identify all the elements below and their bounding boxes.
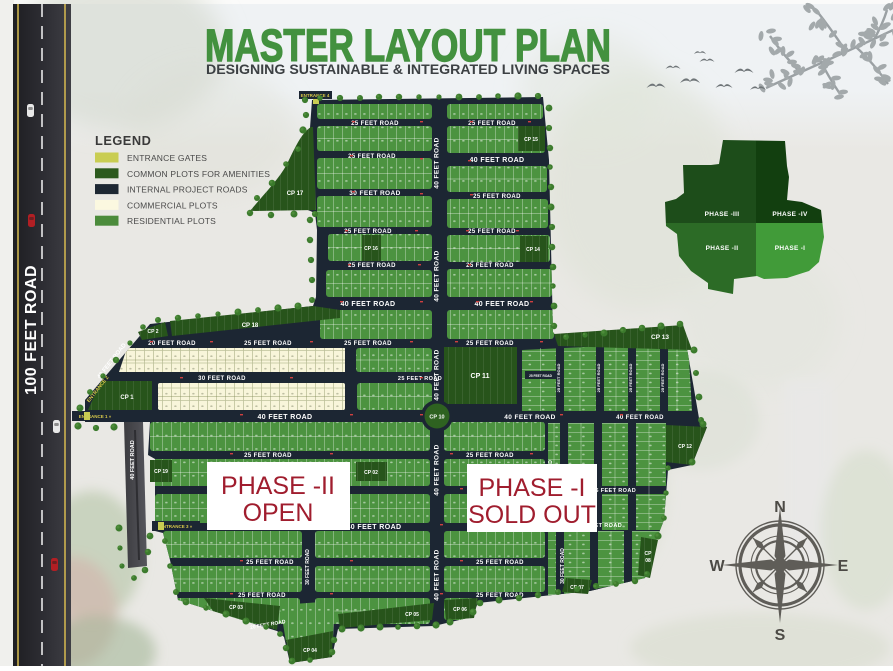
svg-text:CP 05: CP 05 xyxy=(405,612,419,618)
svg-text:40 FEET ROAD: 40 FEET ROAD xyxy=(434,549,441,600)
svg-text:40 FEET ROAD: 40 FEET ROAD xyxy=(434,250,441,301)
svg-text:25 FEET ROAD: 25 FEET ROAD xyxy=(344,341,392,347)
svg-text:08: 08 xyxy=(645,558,651,564)
svg-text:25 FEET ROAD: 25 FEET ROAD xyxy=(468,229,516,235)
svg-text:25 FEET ROAD: 25 FEET ROAD xyxy=(466,263,514,269)
svg-text:40 FEET ROAD: 40 FEET ROAD xyxy=(434,444,441,495)
svg-text:S: S xyxy=(775,627,786,644)
svg-text:40 FEET ROAD: 40 FEET ROAD xyxy=(504,414,555,421)
svg-text:25 FEET ROAD: 25 FEET ROAD xyxy=(476,560,524,566)
svg-text:25 FEET ROAD: 25 FEET ROAD xyxy=(348,263,396,269)
svg-text:25 FEET ROAD: 25 FEET ROAD xyxy=(628,364,633,393)
svg-text:ENTRANCE 3 »: ENTRANCE 3 » xyxy=(160,524,193,529)
svg-text:30 FEET ROAD: 30 FEET ROAD xyxy=(349,190,400,197)
svg-text:CP 02: CP 02 xyxy=(364,470,378,476)
svg-text:25 FEET ROAD: 25 FEET ROAD xyxy=(244,341,292,347)
svg-text:30 FEET ROAD: 30 FEET ROAD xyxy=(305,549,311,585)
svg-text:N: N xyxy=(774,499,786,516)
svg-text:25 FEET ROAD: 25 FEET ROAD xyxy=(238,593,286,599)
svg-text:CP 13: CP 13 xyxy=(651,334,669,341)
svg-text:40 FEET ROAD: 40 FEET ROAD xyxy=(347,524,402,531)
svg-text:40 FEET ROAD: 40 FEET ROAD xyxy=(475,301,530,308)
svg-text:CP 2: CP 2 xyxy=(147,329,158,335)
svg-text:DESIGNING SUSTAINABLE & INTEGR: DESIGNING SUSTAINABLE & INTEGRATED LIVIN… xyxy=(206,62,610,77)
svg-text:25 FEET ROAD: 25 FEET ROAD xyxy=(246,560,294,566)
svg-text:RESIDENTIAL PLOTS: RESIDENTIAL PLOTS xyxy=(127,216,216,226)
svg-text:LEGEND: LEGEND xyxy=(95,133,151,148)
svg-text:CP 15: CP 15 xyxy=(524,137,538,143)
svg-text:CP 16: CP 16 xyxy=(364,246,378,252)
svg-text:CP 1: CP 1 xyxy=(120,395,134,401)
svg-text:25 FEET ROAD: 25 FEET ROAD xyxy=(351,121,399,127)
svg-text:W: W xyxy=(709,558,725,575)
svg-text:CP 19: CP 19 xyxy=(154,469,168,475)
svg-text:25 FEET ROAD: 25 FEET ROAD xyxy=(592,488,636,494)
svg-text:ENTRANCE GATES: ENTRANCE GATES xyxy=(127,153,207,163)
svg-text:SOLD OUT: SOLD OUT xyxy=(468,501,596,529)
svg-text:40 FEET ROAD: 40 FEET ROAD xyxy=(616,415,664,421)
svg-text:PHASE -II: PHASE -II xyxy=(706,245,739,252)
svg-text:25 FEET ROAD: 25 FEET ROAD xyxy=(596,364,601,393)
svg-text:CP 10: CP 10 xyxy=(429,415,444,421)
svg-text:25 FEET ROAD: 25 FEET ROAD xyxy=(466,341,514,347)
svg-text:40 FEET ROAD: 40 FEET ROAD xyxy=(341,301,396,308)
svg-text:CP 06: CP 06 xyxy=(453,607,467,613)
svg-text:E: E xyxy=(838,558,849,575)
svg-text:CP: CP xyxy=(645,551,653,557)
svg-text:PHASE -IV: PHASE -IV xyxy=(772,211,808,218)
svg-text:40 FEET ROAD: 40 FEET ROAD xyxy=(470,157,525,164)
svg-text:100 FEET ROAD: 100 FEET ROAD xyxy=(23,265,40,395)
svg-text:PHASE -III: PHASE -III xyxy=(705,211,740,218)
svg-text:COMMERCIAL PLOTS: COMMERCIAL PLOTS xyxy=(127,200,218,210)
svg-text:PHASE -II: PHASE -II xyxy=(221,472,335,500)
svg-text:25 FEET ROAD: 25 FEET ROAD xyxy=(244,453,292,459)
svg-text:25 FEET ROAD: 25 FEET ROAD xyxy=(529,374,553,378)
svg-text:CP 18: CP 18 xyxy=(242,323,259,329)
svg-text:PHASE -I: PHASE -I xyxy=(479,474,586,502)
svg-text:INTERNAL PROJECT ROADS: INTERNAL PROJECT ROADS xyxy=(127,185,248,195)
svg-text:PHASE -I: PHASE -I xyxy=(775,245,806,252)
svg-text:40 FEET ROAD: 40 FEET ROAD xyxy=(434,137,441,188)
svg-text:CP 04: CP 04 xyxy=(303,648,317,654)
svg-text:25 FEET ROAD: 25 FEET ROAD xyxy=(466,453,514,459)
svg-text:40 FEET ROAD: 40 FEET ROAD xyxy=(258,414,313,421)
svg-text:CP 17: CP 17 xyxy=(287,191,304,197)
svg-text:CP 14: CP 14 xyxy=(526,247,540,253)
svg-text:40 FEET ROAD: 40 FEET ROAD xyxy=(130,440,136,479)
svg-text:25 FEET ROAD: 25 FEET ROAD xyxy=(660,364,665,393)
svg-text:OPEN: OPEN xyxy=(243,499,314,527)
svg-text:25 FEET ROAD: 25 FEET ROAD xyxy=(348,154,396,160)
svg-text:CP 11: CP 11 xyxy=(471,373,490,380)
svg-text:ENTRANCE 1 »: ENTRANCE 1 » xyxy=(79,414,112,419)
svg-text:20 FEET ROAD: 20 FEET ROAD xyxy=(148,341,196,347)
svg-text:30 FEET ROAD: 30 FEET ROAD xyxy=(198,376,246,382)
svg-text:CP 12: CP 12 xyxy=(678,444,692,450)
svg-text:COMMON PLOTS FOR AMENITIES: COMMON PLOTS FOR AMENITIES xyxy=(127,169,270,179)
svg-text:25 FEET ROAD: 25 FEET ROAD xyxy=(344,229,392,235)
svg-text:CP 03: CP 03 xyxy=(229,605,243,611)
svg-text:25 FEET ROAD: 25 FEET ROAD xyxy=(473,194,521,200)
svg-text:25 FEET ROAD: 25 FEET ROAD xyxy=(468,121,516,127)
svg-text:40 FEET ROAD: 40 FEET ROAD xyxy=(434,349,441,400)
svg-text:25 FEET ROAD: 25 FEET ROAD xyxy=(556,364,561,393)
svg-text:30 FEET ROAD: 30 FEET ROAD xyxy=(560,548,566,584)
